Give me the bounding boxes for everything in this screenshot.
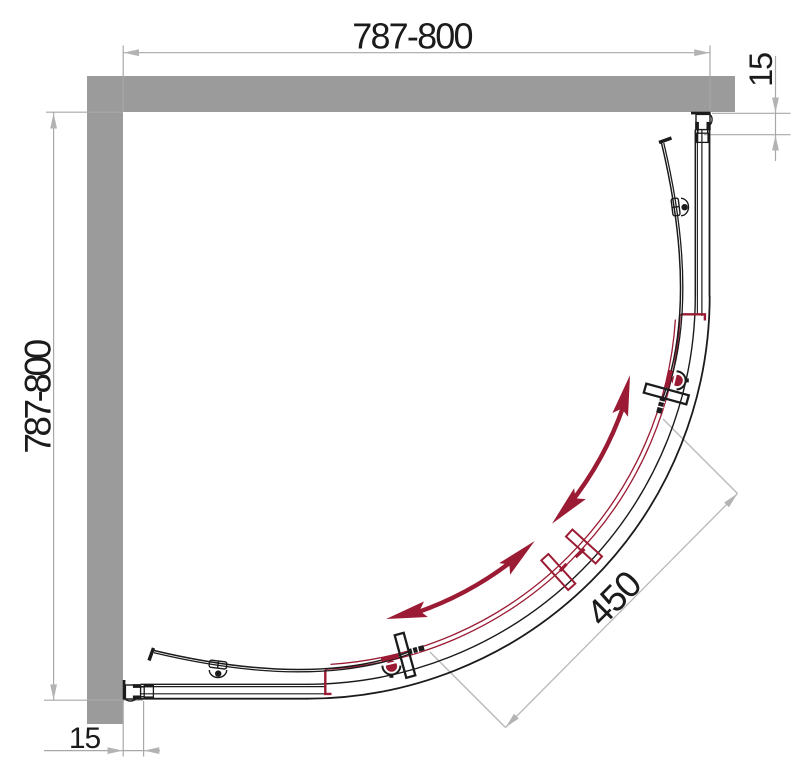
svg-text:787-800: 787-800 <box>352 16 472 57</box>
svg-text:450: 450 <box>578 563 649 634</box>
svg-text:15: 15 <box>69 722 101 755</box>
svg-text:787-800: 787-800 <box>18 339 59 453</box>
svg-text:15: 15 <box>743 53 779 87</box>
